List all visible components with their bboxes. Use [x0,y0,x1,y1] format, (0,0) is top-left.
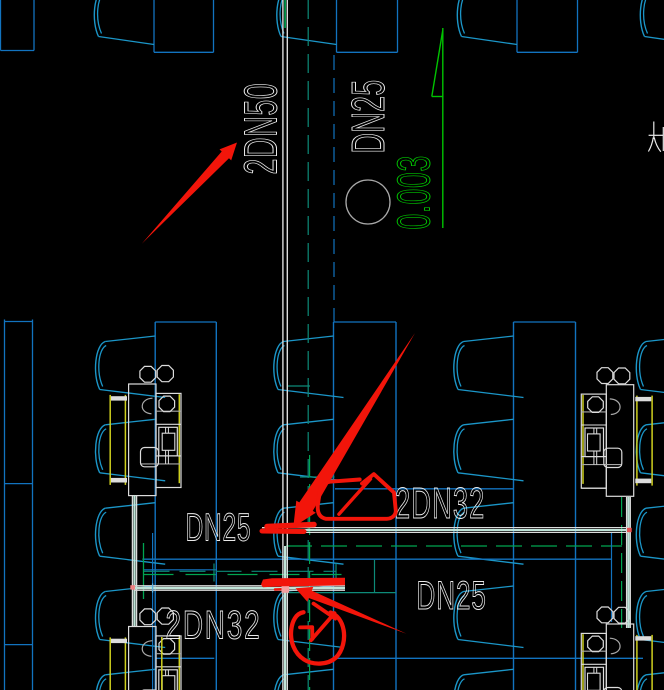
svg-text:0.003: 0.003 [389,155,441,229]
svg-text:DN25: DN25 [417,573,487,618]
svg-text:DN25: DN25 [343,80,395,154]
svg-text:2DN32: 2DN32 [395,478,485,527]
svg-text:DN25: DN25 [186,505,252,549]
svg-text:2DN32: 2DN32 [166,604,262,648]
svg-text:2DN50: 2DN50 [236,83,288,175]
